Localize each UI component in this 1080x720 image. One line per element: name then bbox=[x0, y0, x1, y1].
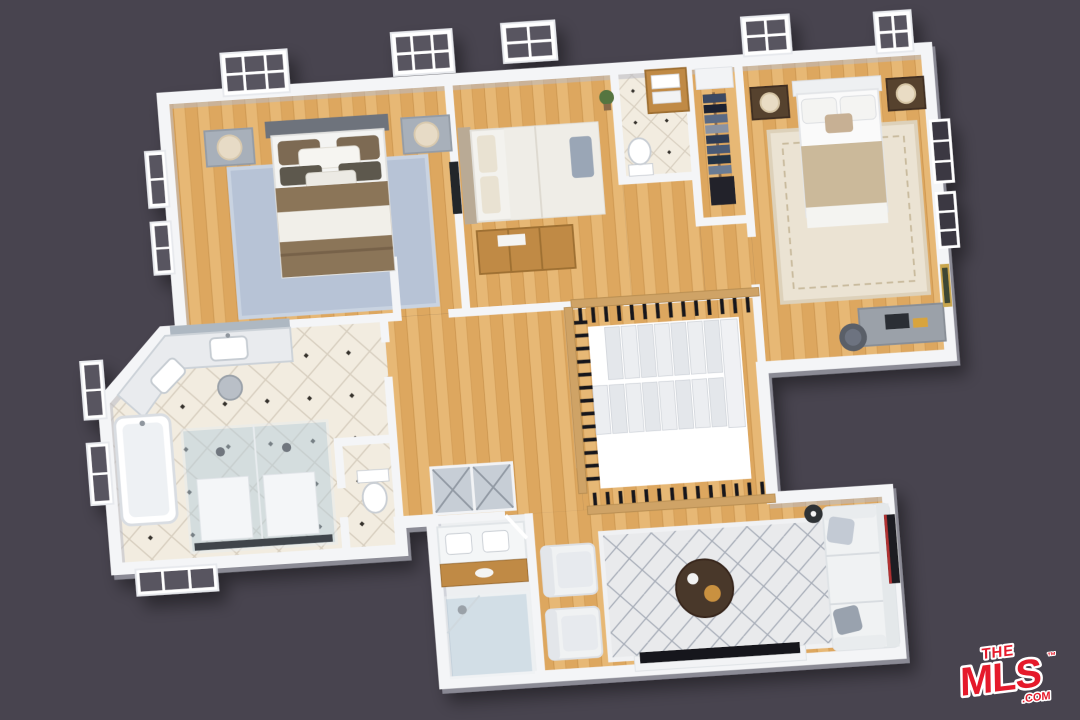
vanity-stool bbox=[217, 375, 243, 401]
window-bath-left-1 bbox=[80, 361, 107, 420]
lower-bath-vanity bbox=[437, 522, 528, 587]
pillow bbox=[824, 113, 853, 133]
window-bath-left-2 bbox=[87, 442, 114, 505]
nightstand-left bbox=[204, 128, 255, 166]
pillow bbox=[569, 136, 594, 178]
sink bbox=[445, 533, 472, 555]
glass-shower bbox=[182, 421, 337, 553]
window-master-left-2 bbox=[150, 221, 174, 274]
towels bbox=[651, 74, 680, 89]
window-bedroom3-right-1 bbox=[930, 120, 953, 183]
window-bedroom3-top-1 bbox=[741, 14, 792, 56]
window-bedroom3-right-2 bbox=[936, 192, 959, 247]
sink bbox=[482, 530, 509, 552]
window-master-top-2 bbox=[391, 29, 455, 76]
floorplan-render bbox=[0, 0, 1080, 720]
bedroom2-dresser bbox=[477, 225, 576, 274]
window-bedroom3-top-2 bbox=[874, 10, 914, 53]
floorplan-image: THE MLS ™ .COM bbox=[0, 0, 1080, 720]
table-lamp bbox=[217, 135, 243, 161]
towels bbox=[652, 91, 680, 104]
window-master-left-1 bbox=[145, 151, 170, 208]
armchair bbox=[545, 606, 602, 660]
armchair bbox=[540, 543, 597, 597]
window-master-top-1 bbox=[220, 49, 290, 96]
window-bedroom2-top bbox=[501, 20, 557, 63]
house-plan bbox=[56, 0, 991, 710]
bedroom3-nightstand-right bbox=[886, 77, 925, 111]
table-lamp bbox=[896, 84, 916, 104]
mls-logo: THE MLS ™ .COM bbox=[943, 625, 1072, 720]
lower-bath-shower bbox=[445, 592, 534, 677]
bedroom3-nightstand-left bbox=[750, 86, 789, 120]
duvet bbox=[801, 141, 887, 211]
upper-hall-floor bbox=[622, 176, 705, 302]
pillow bbox=[476, 135, 497, 173]
mirrored-closet bbox=[431, 463, 516, 515]
garment-bag bbox=[709, 176, 736, 206]
table-lamp bbox=[414, 122, 440, 148]
table-lamp bbox=[760, 93, 780, 113]
logo-com: .COM bbox=[1022, 690, 1051, 706]
bedroom3-bed bbox=[792, 76, 892, 229]
window-bath-bottom bbox=[135, 564, 218, 595]
nightstand-right bbox=[401, 115, 452, 153]
hall-bathroom-vanity bbox=[645, 68, 689, 113]
shower-tray bbox=[263, 472, 319, 537]
pillow bbox=[826, 516, 855, 546]
logo-tm: ™ bbox=[1047, 650, 1056, 661]
bathtub bbox=[114, 414, 178, 526]
laptop bbox=[885, 313, 910, 329]
pillow bbox=[480, 176, 501, 214]
sink bbox=[210, 336, 249, 361]
notebook bbox=[913, 317, 928, 327]
closet-shelf bbox=[695, 67, 733, 90]
bedroom2-bed bbox=[457, 119, 604, 225]
master-bed bbox=[265, 114, 401, 278]
shower-tray bbox=[197, 476, 253, 541]
